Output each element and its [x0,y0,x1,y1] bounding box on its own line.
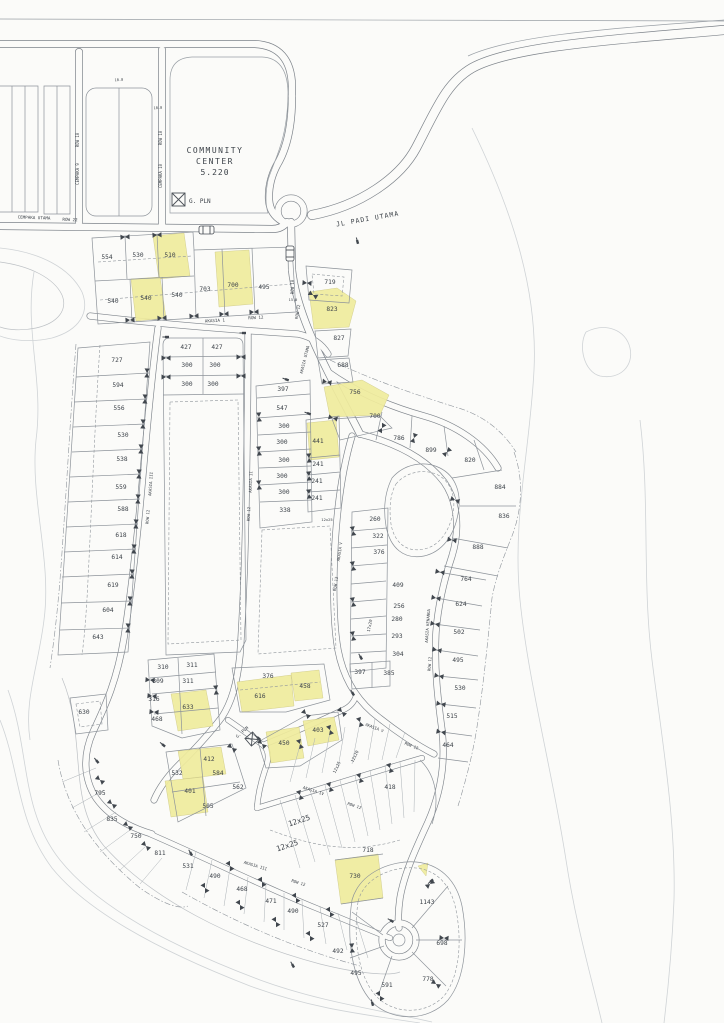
lot-label-591: 591 [381,982,392,989]
lot-label-338: 338 [279,507,290,514]
lot-label-624: 624 [455,601,466,608]
lot-label-495: 495 [452,657,463,664]
lot-label-554: 554 [101,254,112,261]
lot-label-540: 540 [140,295,151,302]
lot-label-441: 441 [312,438,323,445]
lot-label-468: 468 [236,886,247,893]
lot-label-427: 427 [211,344,222,351]
lot-label-300: 300 [278,457,289,464]
land-label-community: COMMUNITY [187,146,244,155]
lot-label-778: 778 [422,976,433,983]
lot-label-311: 311 [186,662,197,669]
street-label-row-10: ROW 10 [158,130,163,145]
lot-label-464: 464 [442,742,453,749]
highlighted-lot-700 [215,250,253,307]
lot-label-471: 471 [265,898,276,905]
lot-label-409: 409 [392,582,403,589]
lot-label-538: 538 [116,456,127,463]
land-label-center: CENTER [196,157,234,166]
lot-label-300: 300 [278,423,289,430]
lot-label-727: 727 [111,357,122,364]
lot-label-1143: 1143 [420,899,435,906]
lot-label-450: 450 [278,740,289,747]
lot-label-310: 310 [157,664,168,671]
lot-label-584: 584 [212,770,223,777]
lot-label-490: 490 [287,908,298,915]
street-label-row-22: ROW 22 [62,217,78,223]
lot-label-786: 786 [393,435,404,442]
lot-label-495: 495 [258,284,269,291]
lot-label-562: 562 [232,784,243,791]
lot-label-427: 427 [180,344,191,351]
lot-label-540: 540 [107,298,118,305]
lot-label-397: 397 [354,669,365,676]
lot-label-510: 510 [164,252,175,259]
car-icon [286,246,294,261]
lot-label-403: 403 [312,727,323,734]
lot-label-688: 688 [337,362,348,369]
lot-label-468: 468 [151,716,162,723]
lot-label-614: 614 [111,554,122,561]
lot-label-703: 703 [199,286,210,293]
lot-label-618: 618 [115,532,126,539]
lot-label-280: 280 [391,616,402,623]
lot-label-385: 385 [383,670,394,677]
lot-label-795: 795 [94,790,105,797]
street-label-akasia-ii: AKASIA II [248,470,254,492]
lot-label-322: 322 [372,533,383,540]
lot-label-300: 300 [209,362,220,369]
lot-label-293: 293 [391,633,402,640]
lot-label-719: 719 [324,279,335,286]
street-label-row-12: ROW 12 [145,509,151,524]
lot-label-588: 588 [117,506,128,513]
site-plan-page: COMMUNITYCENTER5.220G. PLNG. PLNJL PADI … [0,0,724,1023]
lot-label-811: 811 [154,850,165,857]
lot-label-241: 241 [312,461,323,468]
lot-label-547: 547 [276,405,287,412]
lot-label-316: 316 [148,696,159,703]
street-label-row-12: ROW 12 [427,656,433,671]
lot-label-836: 836 [498,513,509,520]
street-label-cempaka-10: CEMPAKA 10 [158,163,163,188]
lot-label-397: 397 [277,386,288,393]
lot-label-823: 823 [326,306,337,313]
lot-label-260: 260 [369,516,380,523]
lot-label-304: 304 [392,651,403,658]
lot-label-718: 718 [362,847,373,854]
lot-label-495: 495 [350,970,361,977]
dim-label-10-0: 10.0 [115,78,124,82]
lot-label-300: 300 [181,362,192,369]
lot-label-492: 492 [332,948,343,955]
lot-label-884: 884 [494,484,505,491]
lot-label-540: 540 [171,292,182,299]
lot-label-700: 700 [227,282,238,289]
lot-label-256: 256 [393,603,404,610]
dim-label-12x25: 12x25 [321,517,332,522]
land-label-5-220: 5.220 [200,168,229,177]
lot-label-300: 300 [278,489,289,496]
lot-label-412: 412 [203,756,214,763]
street-label-row-10: ROW 10 [290,279,295,294]
lot-label-531: 531 [182,863,193,870]
lot-label-820: 820 [464,457,475,464]
lot-label-899: 899 [425,447,436,454]
lot-label-311: 311 [182,678,193,685]
lot-label-698: 698 [436,940,447,947]
lot-label-643: 643 [92,634,103,641]
lot-label-532: 532 [171,770,182,777]
lot-label-530: 530 [117,432,128,439]
lot-label-633: 633 [182,704,193,711]
lot-label-241: 241 [311,478,322,485]
lot-label-559: 559 [115,484,126,491]
lot-label-594: 594 [112,382,123,389]
lot-label-527: 527 [317,922,328,929]
lot-label-458: 458 [299,683,310,690]
lot-label-502: 502 [453,629,464,636]
car-icon [199,226,214,234]
lot-label-300: 300 [207,381,218,388]
lot-label-515: 515 [446,713,457,720]
dim-label-15-0: 15.0 [289,298,298,302]
lot-label-556: 556 [113,405,124,412]
lot-label-616: 616 [254,693,265,700]
lot-label-300: 300 [276,473,287,480]
street-label-row-12: ROW 12 [246,506,252,521]
lot-label-530: 530 [132,252,143,259]
dim-label-10-0: 10.0 [154,106,163,110]
lot-label-241: 241 [311,495,322,502]
lot-label-604: 604 [102,607,113,614]
street-label-row-10: ROW 10 [75,132,80,147]
lot-label-700: 700 [369,413,380,420]
lot-label-630: 630 [78,709,89,716]
lot-label-750: 750 [130,833,141,840]
lot-label-505: 505 [202,803,213,810]
site-plan-map: COMMUNITYCENTER5.220G. PLNG. PLNJL PADI … [0,0,724,1023]
lot-label-835: 835 [106,816,117,823]
lot-label-376: 376 [373,549,384,556]
lot-label-418: 418 [384,784,395,791]
lot-label-888: 888 [472,544,483,551]
lot-label-730: 730 [349,873,360,880]
lot-label-619: 619 [107,582,118,589]
lot-label-401: 401 [184,788,195,795]
lot-label-300: 300 [276,439,287,446]
lot-label-827: 827 [333,335,344,342]
lot-label-756: 756 [349,389,360,396]
lot-label-530: 530 [454,685,465,692]
lot-label-490: 490 [209,873,220,880]
street-label-cempaka-9: CEMPAKA 9 [75,163,80,185]
street-label-row-12: ROW 12 [248,315,264,321]
lot-label-309: 309 [152,678,163,685]
lot-label-300: 300 [181,381,192,388]
land-label-g-pln: G. PLN [189,198,211,205]
lot-label-376: 376 [262,673,273,680]
lot-label-764: 764 [460,576,471,583]
